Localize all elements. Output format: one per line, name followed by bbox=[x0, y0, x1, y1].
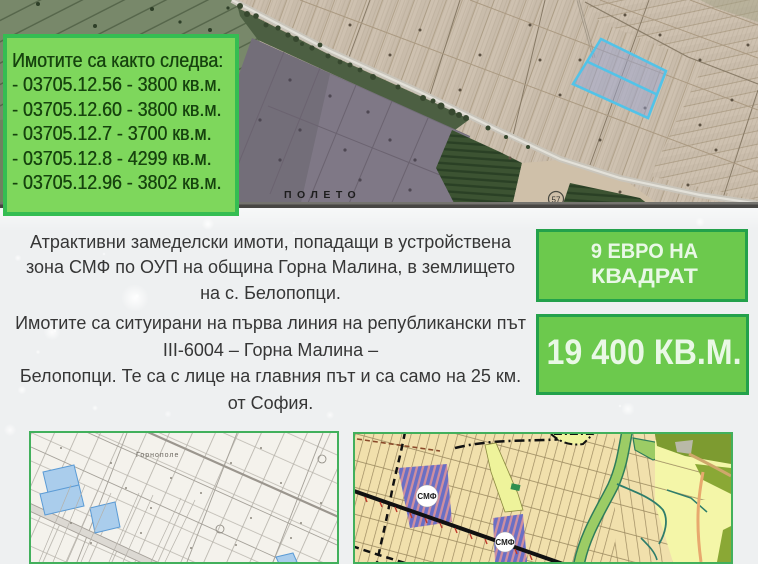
svg-text:Горнополе: Горнополе bbox=[136, 452, 179, 459]
svg-text:СМФ: СМФ bbox=[417, 492, 436, 501]
svg-text:ПОЛЕТО: ПОЛЕТО bbox=[284, 189, 361, 201]
svg-text:СМФ: СМФ bbox=[495, 538, 514, 547]
